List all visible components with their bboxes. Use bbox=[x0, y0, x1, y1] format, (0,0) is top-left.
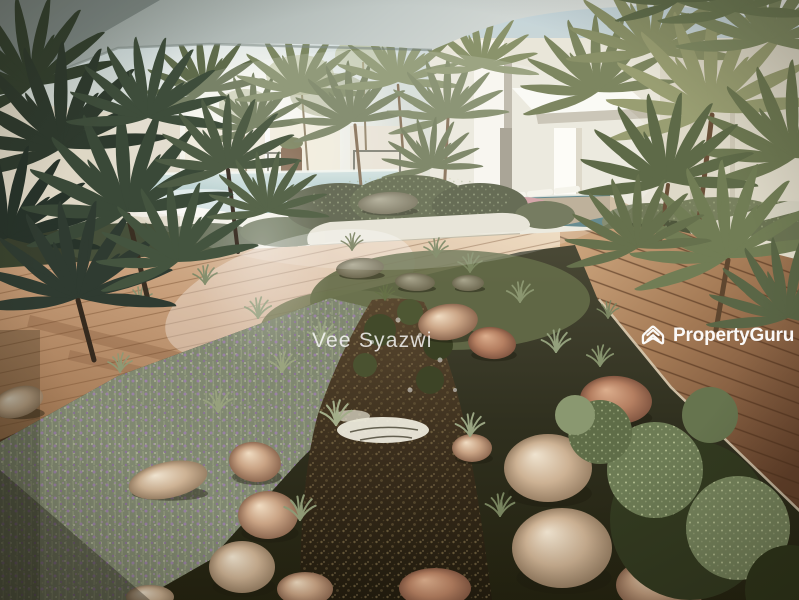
propertyguru-wordmark: PropertyGuru bbox=[673, 325, 794, 347]
propertyguru-watermark: PropertyGuru bbox=[639, 320, 794, 351]
vignette bbox=[0, 0, 799, 600]
listing-photo: Vee Syazwi PropertyGuru bbox=[0, 0, 799, 600]
edge-shadow bbox=[0, 330, 40, 600]
watermark-text: Vee Syazwi bbox=[312, 329, 433, 352]
photographer-watermark: Vee Syazwi bbox=[312, 329, 433, 353]
courtyard-photo bbox=[0, 0, 799, 600]
propertyguru-logo-icon bbox=[639, 320, 667, 351]
